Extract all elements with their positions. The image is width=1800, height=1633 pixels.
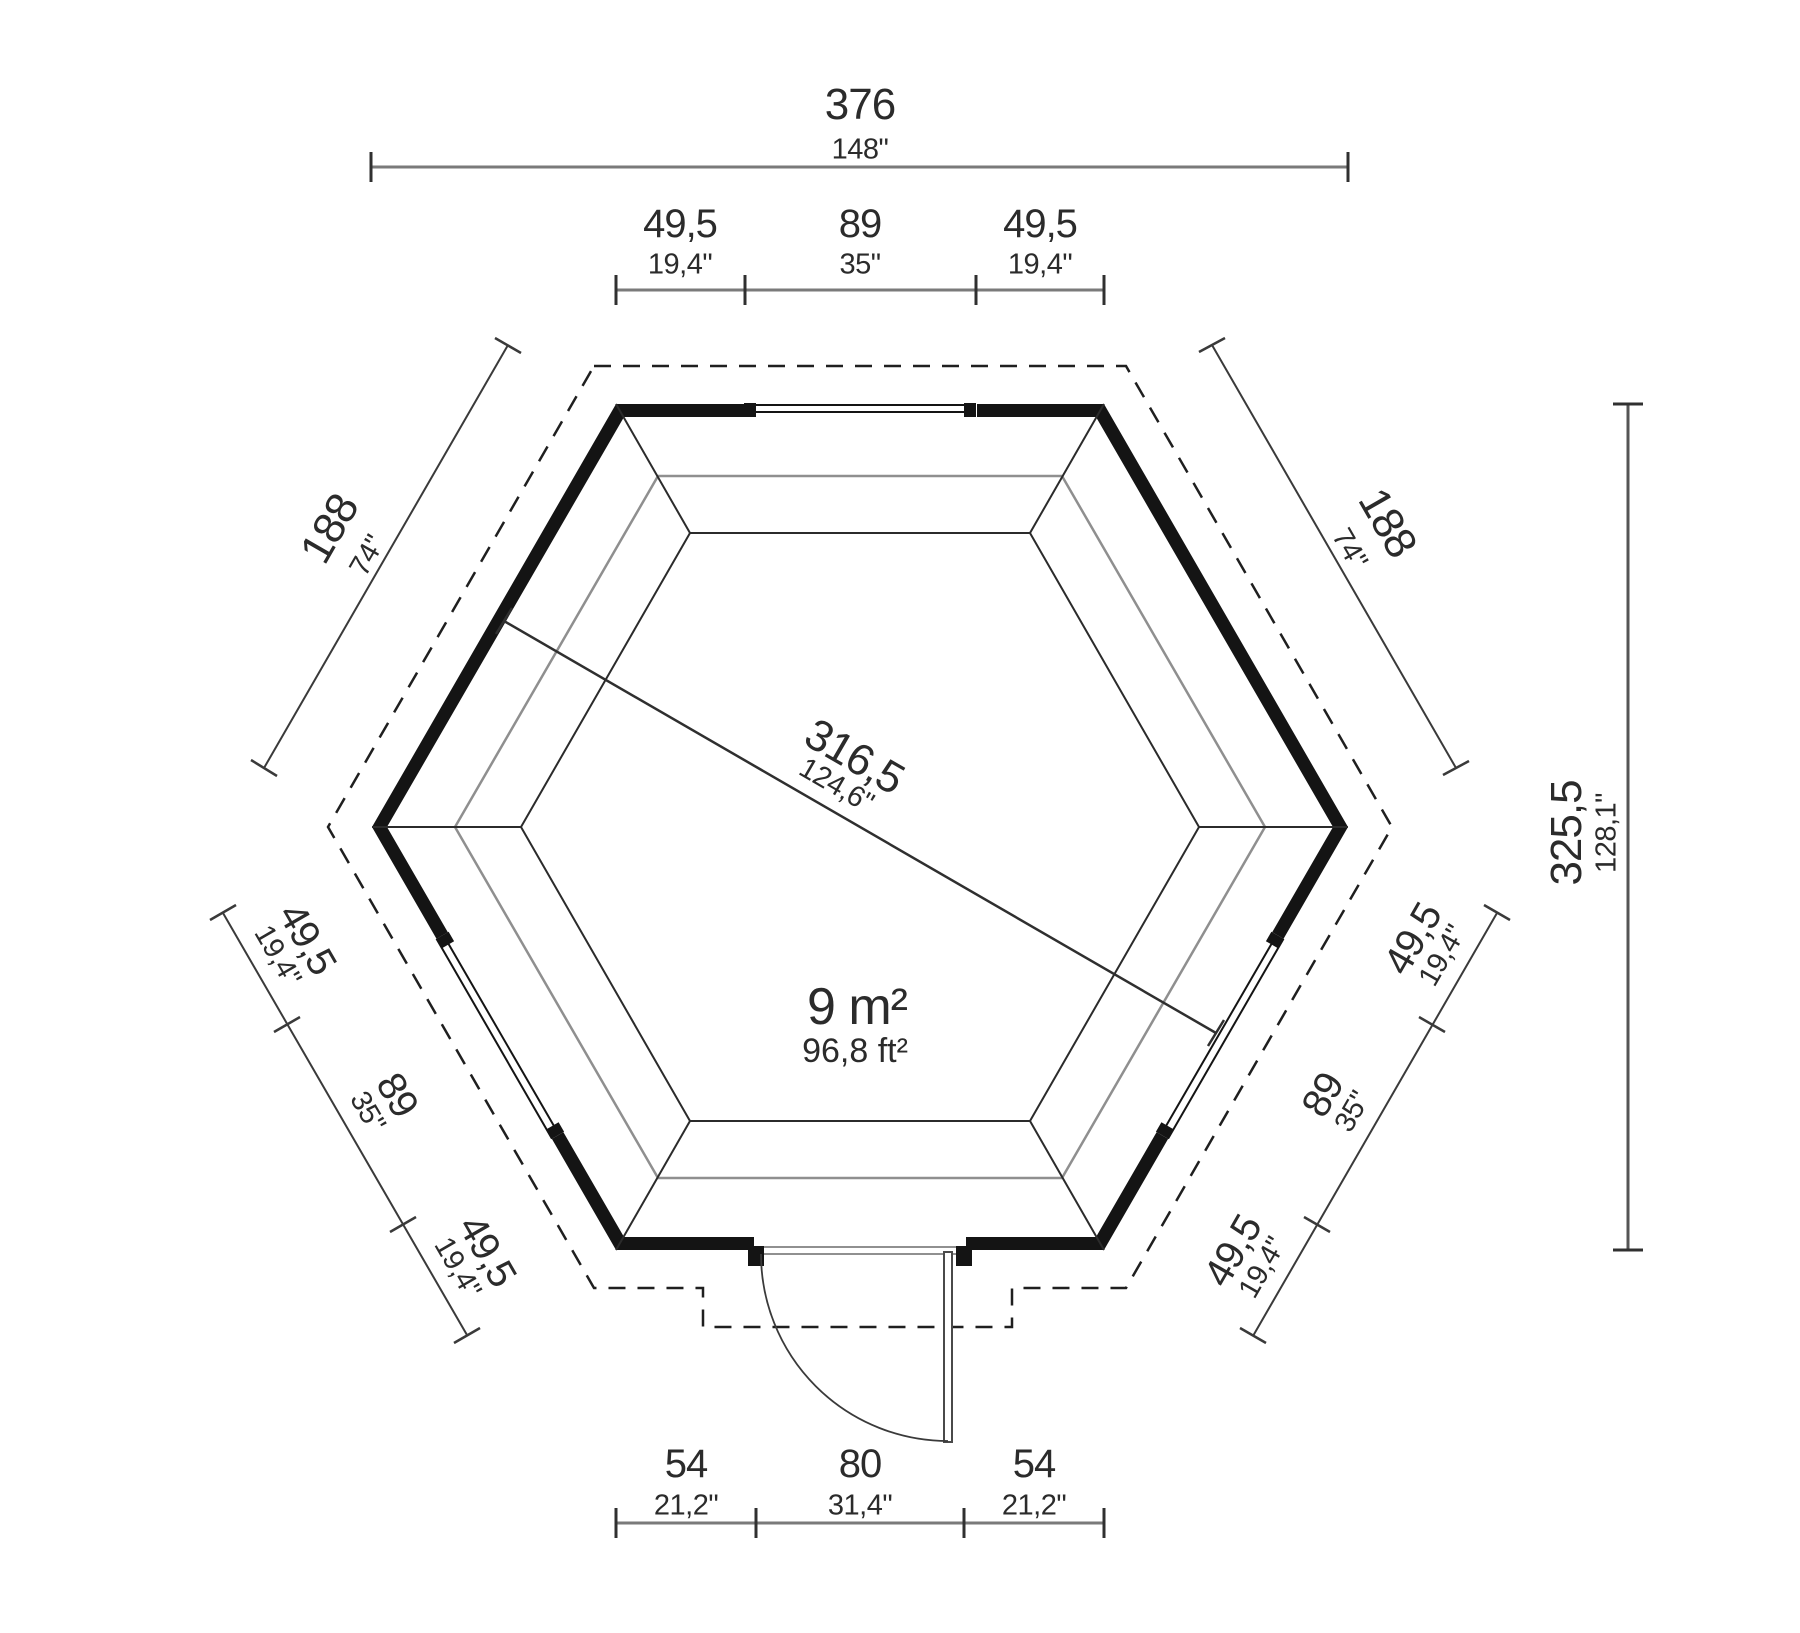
top-segment-1-inch-label: 19,4"	[648, 251, 712, 280]
bottom-segment-2-inch-label: 31,4"	[828, 1492, 892, 1521]
bottom-segment-2-cm-label: 80	[839, 1444, 882, 1484]
overall-width-inch-label: 148"	[832, 136, 889, 165]
overall-height-cm-label: 325,5	[1545, 780, 1589, 885]
door-post-right	[956, 1246, 972, 1266]
area-imperial-label: 96,8 ft²	[802, 1034, 908, 1068]
bottom-segment-3-inch-label: 21,2"	[1002, 1492, 1066, 1521]
floor-plan-drawing	[0, 0, 1800, 1633]
top-segment-2-inch-label: 35"	[839, 251, 880, 280]
bottom-segment-3-cm-label: 54	[1013, 1444, 1056, 1484]
roof-outline	[328, 366, 1392, 1327]
dim-side-upper-left	[251, 338, 521, 776]
door	[748, 1246, 972, 1442]
overall-width-cm-label: 376	[825, 83, 895, 127]
top-segment-3-inch-label: 19,4"	[1008, 251, 1072, 280]
top-segment-1-cm-label: 49,5	[643, 204, 717, 244]
bottom-segment-1-inch-label: 21,2"	[654, 1492, 718, 1521]
dim-lower-left-segments	[210, 905, 480, 1343]
door-swing-arc	[761, 1254, 948, 1441]
top-segment-2-cm-label: 89	[839, 204, 882, 244]
dim-lower-right-segments	[1240, 905, 1510, 1343]
floor-plan-page: 376 148" 49,5 89 49,5 19,4" 35" 19,4" 32…	[0, 0, 1800, 1633]
overall-height-inch-label: 128,1"	[1593, 793, 1622, 873]
area-metric-label: 9 m²	[807, 981, 907, 1033]
top-segment-3-cm-label: 49,5	[1003, 204, 1077, 244]
dim-side-upper-right	[1199, 338, 1469, 775]
bottom-segment-1-cm-label: 54	[665, 1444, 708, 1484]
door-leaf	[944, 1252, 952, 1442]
